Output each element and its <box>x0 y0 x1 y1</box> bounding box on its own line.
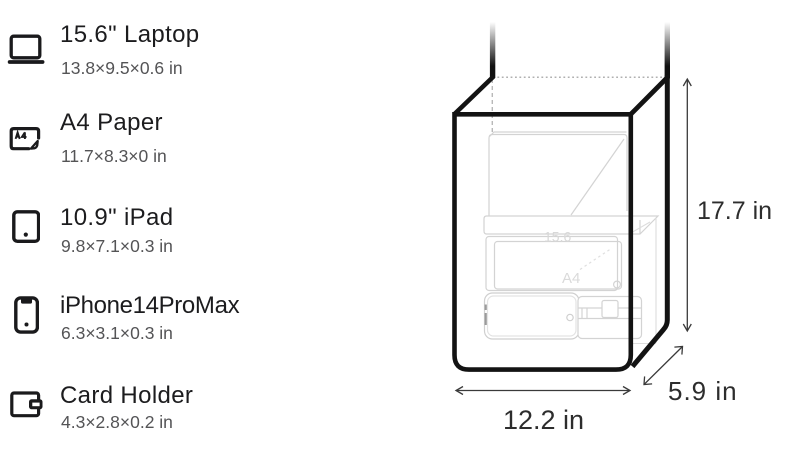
svg-text:15.6: 15.6 <box>544 229 571 245</box>
svg-text:A4: A4 <box>562 270 580 287</box>
